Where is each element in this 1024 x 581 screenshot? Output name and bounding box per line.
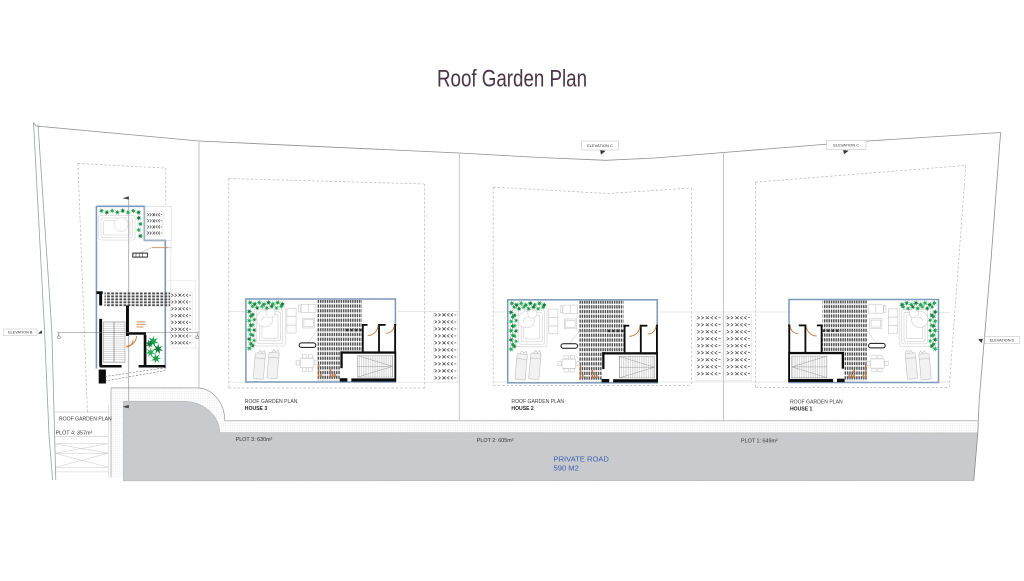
svg-text:ROOF GARDEN PLAN: ROOF GARDEN PLAN [245,399,298,405]
svg-text:ELEVATION B: ELEVATION B [8,331,33,335]
svg-text:ROOF GARDEN PLAN: ROOF GARDEN PLAN [59,416,112,422]
svg-text:ELEVATION D: ELEVATION D [990,338,1015,342]
svg-text:HOUSE 1: HOUSE 1 [790,407,813,413]
svg-text:PLOT 3: 630m²: PLOT 3: 630m² [236,437,273,443]
svg-text:PLOT 1: 649m²: PLOT 1: 649m² [741,438,778,444]
svg-text:ROOF GARDEN PLAN: ROOF GARDEN PLAN [790,400,843,406]
svg-text:590 M2: 590 M2 [554,464,579,473]
svg-text:HOUSE 3: HOUSE 3 [245,406,268,412]
svg-text:Roof Garden Plan: Roof Garden Plan [437,66,587,93]
svg-text:PRIVATE ROAD: PRIVATE ROAD [554,455,610,464]
svg-text:ELEVATION C: ELEVATION C [587,143,613,148]
svg-text:HOUSE 2: HOUSE 2 [511,406,534,412]
svg-text:PLOT 4: 357m²: PLOT 4: 357m² [56,430,93,436]
svg-text:PLOT 2: 605m²: PLOT 2: 605m² [477,438,514,444]
svg-text:ELEVATION C: ELEVATION C [833,142,859,147]
svg-text:ROOF GARDEN PLAN: ROOF GARDEN PLAN [511,399,564,405]
